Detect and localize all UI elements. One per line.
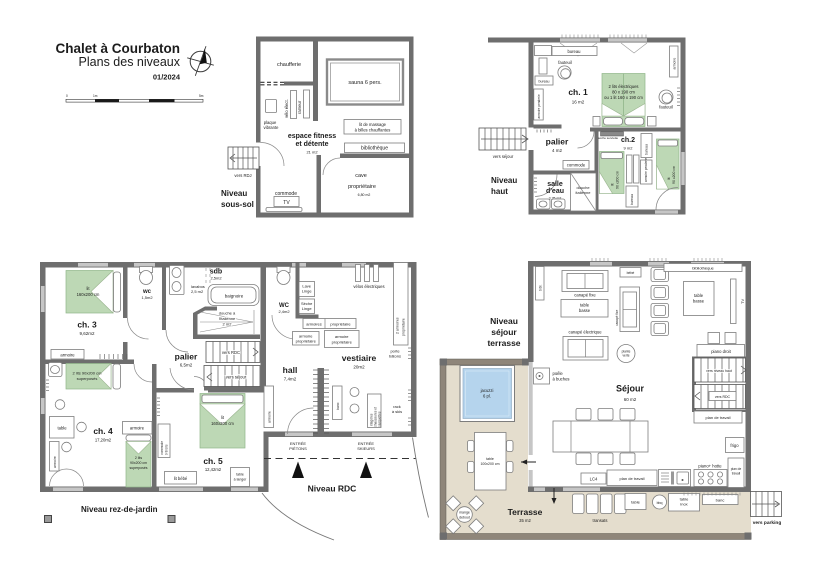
svg-text:Niveau: Niveau bbox=[490, 316, 518, 326]
svg-text:canapé fixe: canapé fixe bbox=[574, 293, 596, 298]
svg-text:bureau: bureau bbox=[630, 194, 634, 205]
svg-text:bibl.: bibl. bbox=[539, 285, 543, 291]
svg-text:sous-sol: sous-sol bbox=[221, 200, 254, 209]
svg-text:80 x 190 cm: 80 x 190 cm bbox=[612, 90, 635, 95]
svg-text:mange: mange bbox=[459, 511, 470, 515]
svg-text:plan de travail: plan de travail bbox=[706, 415, 731, 420]
svg-text:90 x200 cm: 90 x200 cm bbox=[672, 166, 676, 184]
svg-text:ch. 1: ch. 1 bbox=[568, 87, 588, 97]
svg-text:table: table bbox=[57, 426, 67, 431]
svg-text:l'italienne: l'italienne bbox=[219, 316, 236, 321]
svg-text:35 m2: 35 m2 bbox=[519, 518, 531, 523]
svg-text:à billes chauffantes: à billes chauffantes bbox=[355, 128, 391, 133]
svg-text:fauteuil: fauteuil bbox=[659, 105, 673, 110]
svg-text:casquettes: casquettes bbox=[378, 411, 382, 427]
svg-text:commode: commode bbox=[567, 163, 586, 168]
svg-text:piano droit: piano droit bbox=[711, 349, 731, 354]
svg-text:TV: TV bbox=[740, 299, 745, 304]
svg-text:superposés: superposés bbox=[77, 376, 98, 381]
svg-text:ou 1 lit 160 x 190 cm: ou 1 lit 160 x 190 cm bbox=[604, 95, 643, 100]
svg-text:Niveau: Niveau bbox=[491, 176, 517, 185]
svg-text:lit bébé: lit bébé bbox=[174, 476, 188, 481]
svg-text:douche à: douche à bbox=[219, 311, 236, 316]
svg-text:bbq: bbq bbox=[657, 501, 663, 505]
svg-text:lit: lit bbox=[667, 177, 671, 180]
svg-text:vestiaire: vestiaire bbox=[342, 353, 377, 363]
svg-text:baignoire: baignoire bbox=[225, 294, 244, 299]
svg-text:vers RDJ: vers RDJ bbox=[234, 173, 251, 178]
svg-text:banc: banc bbox=[716, 498, 725, 503]
svg-text:armoire penderie: armoire penderie bbox=[537, 94, 541, 118]
svg-text:basse: basse bbox=[579, 308, 591, 313]
svg-text:PIÉTONS: PIÉTONS bbox=[289, 446, 307, 451]
svg-text:vibrante: vibrante bbox=[264, 125, 280, 130]
svg-text:transats: transats bbox=[593, 518, 608, 523]
svg-text:Niveau rez-de-jardin: Niveau rez-de-jardin bbox=[81, 505, 158, 514]
svg-text:lit: lit bbox=[611, 183, 615, 186]
svg-text:Niveau RDC: Niveau RDC bbox=[308, 484, 357, 494]
svg-text:terrasse: terrasse bbox=[487, 338, 520, 348]
svg-text:9,62m2: 9,62m2 bbox=[79, 331, 95, 336]
svg-text:6,80 m2: 6,80 m2 bbox=[358, 193, 371, 197]
svg-text:armoire: armoire bbox=[53, 456, 57, 468]
svg-text:vélo élect.: vélo élect. bbox=[284, 99, 289, 118]
svg-text:armoires: armoires bbox=[306, 322, 322, 327]
svg-text:debout: debout bbox=[459, 516, 470, 520]
svg-text:21 m2: 21 m2 bbox=[306, 150, 318, 155]
svg-text:1,5m2: 1,5m2 bbox=[141, 295, 153, 300]
svg-text:salle: salle bbox=[547, 181, 563, 188]
svg-text:6,5m2: 6,5m2 bbox=[180, 363, 193, 368]
svg-text:TV: TV bbox=[283, 200, 290, 206]
svg-text:17,20m2: 17,20m2 bbox=[95, 438, 112, 443]
svg-text:bureau: bureau bbox=[567, 49, 581, 54]
svg-text:inox: inox bbox=[680, 502, 687, 507]
svg-text:propriétaire: propriétaire bbox=[296, 339, 317, 344]
svg-text:canapé fixe: canapé fixe bbox=[615, 309, 619, 326]
svg-text:sdb: sdb bbox=[210, 269, 222, 276]
svg-text:armoire: armoire bbox=[130, 426, 145, 431]
svg-text:Niveau: Niveau bbox=[221, 189, 247, 198]
svg-text:LC4: LC4 bbox=[590, 477, 598, 482]
svg-text:propriétaire: propriétaire bbox=[330, 322, 351, 327]
svg-text:7,4m2: 7,4m2 bbox=[284, 377, 297, 382]
svg-text:armoire penderie: armoire penderie bbox=[644, 158, 648, 182]
svg-text:lit de massage: lit de massage bbox=[359, 122, 387, 127]
svg-text:vélos électriques: vélos électriques bbox=[353, 284, 384, 289]
svg-text:100x200 cm: 100x200 cm bbox=[480, 462, 499, 466]
svg-text:et détente: et détente bbox=[295, 141, 328, 148]
svg-text:vers séjour: vers séjour bbox=[493, 154, 514, 159]
svg-text:italienne: italienne bbox=[576, 190, 592, 195]
svg-text:4 m2: 4 m2 bbox=[552, 148, 563, 153]
svg-text:travail: travail bbox=[732, 472, 741, 476]
svg-text:vers RDC: vers RDC bbox=[222, 350, 240, 355]
svg-text:séjour: séjour bbox=[491, 327, 517, 337]
svg-text:jacuzzi: jacuzzi bbox=[480, 388, 494, 393]
svg-text:canapé électrique: canapé électrique bbox=[568, 330, 602, 335]
svg-text:vers niveau haut: vers niveau haut bbox=[706, 369, 732, 373]
svg-text:plan de travail: plan de travail bbox=[620, 476, 645, 481]
svg-text:ch. 4: ch. 4 bbox=[93, 426, 113, 436]
svg-text:160x200 cm: 160x200 cm bbox=[77, 292, 100, 297]
svg-text:espace fitness: espace fitness bbox=[288, 133, 336, 140]
svg-text:banc: banc bbox=[336, 402, 340, 410]
svg-text:160x200 cm: 160x200 cm bbox=[211, 421, 234, 426]
svg-text:commode: commode bbox=[160, 441, 164, 455]
svg-text:5m: 5m bbox=[199, 94, 204, 98]
svg-text:2,5m2: 2,5m2 bbox=[210, 276, 222, 281]
svg-text:basse: basse bbox=[693, 299, 705, 304]
svg-text:palier: palier bbox=[175, 352, 198, 362]
svg-text:bâtons: bâtons bbox=[389, 354, 401, 359]
svg-text:16 m2: 16 m2 bbox=[572, 100, 585, 105]
svg-text:table: table bbox=[236, 473, 244, 477]
svg-text:sèche serviette: sèche serviette bbox=[598, 136, 619, 140]
svg-text:hall: hall bbox=[283, 365, 298, 375]
svg-text:9 tiroirs: 9 tiroirs bbox=[165, 444, 169, 455]
svg-text:Séjour: Séjour bbox=[616, 384, 645, 394]
svg-text:20m2: 20m2 bbox=[353, 365, 365, 370]
svg-text:Plans des niveaux: Plans des niveaux bbox=[79, 55, 181, 69]
svg-text:bébé: bébé bbox=[627, 271, 635, 275]
svg-text:haut: haut bbox=[491, 187, 508, 196]
svg-text:vers séjour: vers séjour bbox=[226, 375, 247, 380]
svg-text:frigo: frigo bbox=[730, 443, 739, 448]
svg-text:table: table bbox=[631, 500, 640, 505]
svg-text:1m: 1m bbox=[93, 94, 98, 98]
svg-text:2 armoires: 2 armoires bbox=[396, 317, 400, 334]
svg-text:bureau: bureau bbox=[645, 144, 649, 155]
svg-text:rameur: rameur bbox=[297, 100, 302, 114]
svg-text:table: table bbox=[486, 457, 494, 461]
svg-text:2,4m2: 2,4m2 bbox=[278, 309, 290, 314]
svg-text:table: table bbox=[694, 293, 704, 298]
svg-text:SKIEURS: SKIEURS bbox=[357, 446, 375, 451]
svg-text:plan de: plan de bbox=[731, 467, 742, 471]
svg-text:60 m2: 60 m2 bbox=[624, 397, 637, 402]
svg-text:d'eau: d'eau bbox=[546, 188, 564, 195]
svg-text:01/2024: 01/2024 bbox=[153, 73, 181, 82]
svg-text:2 lits: 2 lits bbox=[135, 456, 142, 460]
svg-text:Linge: Linge bbox=[302, 306, 313, 311]
svg-text:ch. 5: ch. 5 bbox=[203, 456, 223, 466]
svg-text:chaufferie: chaufferie bbox=[277, 62, 301, 68]
svg-text:2 lits électriques: 2 lits électriques bbox=[608, 84, 638, 89]
svg-text:propriétaire: propriétaire bbox=[332, 340, 353, 345]
svg-text:12,42m2: 12,42m2 bbox=[205, 467, 222, 472]
svg-text:vers parking: vers parking bbox=[753, 520, 782, 526]
svg-text:Linge: Linge bbox=[302, 289, 313, 294]
svg-text:propriétaire: propriétaire bbox=[348, 184, 376, 190]
svg-text:propriétaire: propriétaire bbox=[402, 318, 406, 336]
svg-text:verte: verte bbox=[622, 354, 629, 358]
svg-text:Chalet à Courbaton: Chalet à Courbaton bbox=[55, 41, 180, 56]
svg-text:piano+ hotte: piano+ hotte bbox=[698, 464, 722, 469]
svg-text:superposés: superposés bbox=[129, 466, 147, 470]
svg-text:2 m2: 2 m2 bbox=[223, 322, 233, 327]
svg-text:palier: palier bbox=[546, 137, 569, 147]
svg-text:90x200 cm: 90x200 cm bbox=[130, 461, 147, 465]
svg-text:2 lits 90x200 cm: 2 lits 90x200 cm bbox=[73, 371, 103, 376]
svg-text:à buches: à buches bbox=[553, 377, 570, 382]
svg-text:bibliothèque: bibliothèque bbox=[692, 266, 714, 271]
svg-text:table: table bbox=[580, 303, 590, 308]
svg-text:6 pl.: 6 pl. bbox=[483, 394, 491, 399]
svg-text:9 m2: 9 m2 bbox=[624, 146, 634, 151]
svg-text:ch.2: ch.2 bbox=[621, 137, 635, 144]
svg-text:vers RDC: vers RDC bbox=[715, 395, 731, 399]
svg-text:sauna 6 pers.: sauna 6 pers. bbox=[348, 80, 382, 86]
svg-text:armoire: armoire bbox=[335, 334, 349, 339]
svg-text:armoire: armoire bbox=[60, 353, 75, 358]
svg-text:90 x200 cm: 90 x200 cm bbox=[616, 171, 620, 189]
svg-text:ch. 3: ch. 3 bbox=[77, 320, 97, 330]
svg-text:2,5 m2: 2,5 m2 bbox=[191, 289, 204, 294]
svg-text:à langer: à langer bbox=[234, 478, 247, 482]
svg-text:bureau: bureau bbox=[539, 80, 550, 84]
svg-text:Terrasse: Terrasse bbox=[508, 507, 543, 517]
svg-text:cave: cave bbox=[355, 173, 367, 179]
svg-text:armoire: armoire bbox=[268, 411, 272, 423]
svg-text:0: 0 bbox=[66, 94, 68, 98]
svg-text:poêle: poêle bbox=[553, 371, 564, 376]
svg-text:à skis: à skis bbox=[392, 409, 402, 414]
svg-text:bibliothèque: bibliothèque bbox=[361, 146, 388, 152]
svg-text:fauteuil: fauteuil bbox=[558, 60, 572, 65]
svg-text:armoire: armoire bbox=[673, 58, 677, 70]
